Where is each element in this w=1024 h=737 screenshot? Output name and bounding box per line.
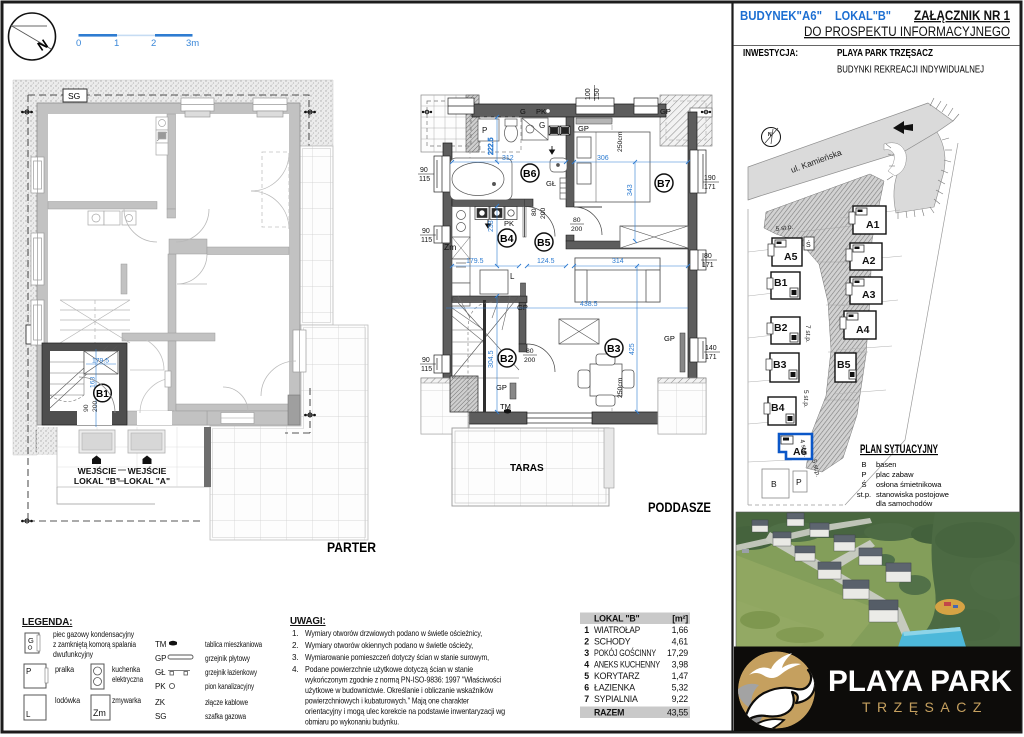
svg-text:osłona śmietnikowa: osłona śmietnikowa [876,480,942,489]
svg-text:171: 171 [702,262,714,269]
svg-text:WEJŚCIE: WEJŚCIE [128,465,167,476]
svg-text:lodówka: lodówka [55,696,81,705]
svg-text:179.5: 179.5 [92,358,109,365]
svg-text:100: 100 [585,88,592,100]
svg-text:343: 343 [627,184,634,196]
svg-text:N: N [768,132,772,138]
svg-text:GP: GP [517,303,528,312]
svg-text:425: 425 [629,343,636,355]
svg-text:200: 200 [92,400,99,412]
svg-text:140: 140 [705,345,717,352]
svg-text:G: G [520,107,526,116]
svg-text:PK: PK [155,682,166,691]
svg-text:B7: B7 [657,178,671,190]
svg-text:222.5: 222.5 [488,137,495,155]
svg-text:A4: A4 [856,324,870,336]
svg-text:250cm: 250cm [617,377,624,398]
svg-text:GP: GP [664,334,675,343]
svg-text:2.: 2. [292,641,299,650]
svg-text:ZK: ZK [155,698,166,707]
svg-text:obmiaru po wykonaniu budynku.: obmiaru po wykonaniu budynku. [305,718,399,727]
svg-text:B: B [771,479,777,489]
svg-text:stanowiska postojowe: stanowiska postojowe [876,490,949,499]
svg-text:P: P [796,477,802,487]
svg-text:304.5: 304.5 [488,350,495,368]
svg-text:Podane powierzchnie użytkowe d: Podane powierzchnie użytkowe dotyczą ści… [305,665,474,674]
svg-text:LOKAL "A": LOKAL "A" [124,476,170,486]
svg-text:A5: A5 [784,251,798,263]
svg-text:DO PROSPEKTU INFORMACYJNEGO: DO PROSPEKTU INFORMACYJNEGO [804,24,1010,39]
svg-text:GP: GP [496,383,507,392]
svg-text:7 st.p.: 7 st.p. [804,325,811,343]
svg-text:Wymiary otworów drzwiowych pod: Wymiary otworów drzwiowych podano w świe… [305,629,482,638]
svg-text:ZAŁĄCZNIK NR 1: ZAŁĄCZNIK NR 1 [914,8,1010,23]
svg-text:plac zabaw: plac zabaw [876,470,914,479]
svg-text:3,98: 3,98 [672,660,689,670]
svg-text:pion kanalizacyjny: pion kanalizacyjny [205,682,254,691]
svg-text:3m: 3m [186,38,199,49]
svg-text:A1: A1 [866,219,880,231]
svg-text:GŁ: GŁ [546,179,556,188]
svg-text:LOKAL "B": LOKAL "B" [74,476,120,486]
svg-text:6: 6 [584,683,589,693]
svg-text:Zm: Zm [444,242,456,252]
svg-text:TM: TM [155,640,167,649]
svg-text:PLAYA PARK TRZĘSACZ: PLAYA PARK TRZĘSACZ [837,48,933,59]
svg-text:314: 314 [612,258,624,265]
svg-text:171: 171 [704,184,716,191]
svg-text:312: 312 [502,155,514,162]
svg-text:B5: B5 [537,237,551,249]
svg-text:4,61: 4,61 [672,637,689,647]
svg-text:grzejnik płytowy: grzejnik płytowy [205,654,250,663]
svg-text:80: 80 [573,217,581,224]
svg-text:LOKAL "B": LOKAL "B" [594,614,640,624]
svg-text:złącze kablowe: złącze kablowe [205,698,249,707]
svg-text:TRZĘSACZ: TRZĘSACZ [862,699,988,715]
svg-text:P: P [861,470,866,479]
svg-text:BUDYNEK"A6": BUDYNEK"A6" [740,8,822,23]
svg-text:[m²]: [m²] [672,614,688,624]
svg-text:A2: A2 [862,255,876,267]
svg-text:GP: GP [660,107,671,116]
svg-text:KORYTARZ: KORYTARZ [594,671,640,681]
svg-text:115: 115 [421,237,432,244]
svg-text:UWAGI:: UWAGI: [290,616,326,627]
svg-text:124.5: 124.5 [537,258,555,265]
svg-text:INWESTYCJA:: INWESTYCJA: [743,48,798,59]
svg-text:TARAS: TARAS [510,463,544,474]
svg-text:90: 90 [422,228,430,235]
svg-text:ŁAZIENKA: ŁAZIENKA [594,683,635,693]
svg-text:WIATROŁAP: WIATROŁAP [594,625,640,635]
svg-text:1: 1 [584,625,589,635]
svg-text:LOKAL"B": LOKAL"B" [835,8,891,23]
svg-text:B3: B3 [607,343,621,355]
svg-text:B1: B1 [774,277,788,289]
svg-text:ANEKS KUCHENNY: ANEKS KUCHENNY [594,660,660,670]
svg-text:dwufunkcyjny: dwufunkcyjny [53,650,93,659]
svg-text:pralka: pralka [55,665,75,674]
svg-text:1,47: 1,47 [672,671,689,681]
svg-text:200: 200 [524,357,536,364]
svg-text:SCHODY: SCHODY [594,637,631,647]
svg-text:0: 0 [76,38,81,49]
svg-text:7: 7 [584,694,589,704]
svg-text:4: 4 [584,660,589,670]
svg-text:115: 115 [421,366,432,373]
svg-text:1,66: 1,66 [672,625,689,635]
svg-text:90: 90 [83,404,90,412]
svg-text:B4: B4 [500,233,514,245]
svg-text:5,32: 5,32 [672,683,689,693]
svg-text:P: P [26,667,31,676]
svg-text:L: L [510,272,515,281]
svg-text:5: 5 [584,671,589,681]
svg-text:1: 1 [114,38,119,49]
svg-text:179.5: 179.5 [466,258,484,265]
svg-text:dla samochodów: dla samochodów [876,499,933,508]
svg-text:G: G [28,636,34,645]
svg-text:BUDYNKI REKREACJI INDYWIDUALNE: BUDYNKI REKREACJI INDYWIDUALNEJ [837,65,984,76]
svg-text:Ś: Ś [806,240,811,249]
svg-text:17,29: 17,29 [667,648,688,658]
svg-text:powierzchniowych i kubaturowyc: powierzchniowych i kubaturowych." Mają o… [305,697,469,706]
svg-text:B: B [861,460,866,469]
svg-text:80: 80 [531,208,538,216]
svg-text:elektryczna: elektryczna [112,675,144,684]
svg-text:GŁ: GŁ [155,668,166,677]
svg-text:wykończonym zgodnie z normą PN: wykończonym zgodnie z normą PN-ISO-9836:… [304,676,501,685]
svg-text:190: 190 [704,175,716,182]
svg-text:80: 80 [704,253,712,260]
svg-text:250cm: 250cm [617,131,624,152]
svg-text:tablica mieszkaniowa: tablica mieszkaniowa [205,640,263,649]
svg-text:RAZEM: RAZEM [594,708,624,718]
svg-text:B2: B2 [774,322,788,334]
svg-text:2: 2 [584,637,589,647]
svg-text:orientacyjny i mogą ulec korek: orientacyjny i mogą ulec korekcie na pod… [305,707,506,716]
svg-text:G: G [539,121,545,130]
svg-text:B2: B2 [500,353,514,365]
svg-text:B6: B6 [523,168,537,180]
svg-text:basen: basen [876,460,896,469]
svg-text:PODDASZE: PODDASZE [648,500,711,515]
svg-text:200: 200 [571,226,583,233]
svg-text:306: 306 [597,155,609,162]
svg-text:LEGENDA:: LEGENDA: [22,617,72,628]
svg-text:GP: GP [578,124,589,133]
svg-text:PK: PK [504,219,514,228]
svg-text:90: 90 [422,357,430,364]
svg-text:użytkowe w budownictwie. Okreś: użytkowe w budownictwie. Określanie i ob… [305,686,493,695]
svg-text:150: 150 [594,88,601,100]
svg-text:9,22: 9,22 [672,694,689,704]
svg-text:SG: SG [68,91,80,101]
svg-text:5 st.p.: 5 st.p. [802,390,809,408]
svg-text:B3: B3 [773,359,787,371]
svg-text:3.: 3. [292,653,299,662]
svg-text:B5: B5 [837,359,851,371]
svg-text:PLAYA PARK: PLAYA PARK [828,665,1012,698]
svg-text:WEJŚCIE: WEJŚCIE [78,465,117,476]
svg-text:4.: 4. [292,665,299,674]
svg-text:3: 3 [584,648,589,658]
svg-text:B4: B4 [771,402,785,414]
svg-text:Ś: Ś [861,480,866,489]
svg-text:PK: PK [536,107,546,116]
svg-text:GP: GP [155,654,166,663]
svg-text:200: 200 [540,207,547,219]
svg-text:SYPIALNIA: SYPIALNIA [594,694,638,704]
svg-text:zmywarka: zmywarka [112,696,142,705]
svg-text:90: 90 [420,167,428,174]
svg-text:kuchenka: kuchenka [112,665,141,674]
svg-text:grzejnik łazienkowy: grzejnik łazienkowy [205,668,257,677]
svg-text:P: P [482,126,487,135]
svg-text:POKÓJ GOŚCINNY: POKÓJ GOŚCINNY [594,647,656,658]
svg-text:2: 2 [151,38,156,49]
svg-text:233: 233 [488,220,495,232]
svg-text:Wymiary otworów okiennych poda: Wymiary otworów okiennych podano w świet… [305,641,473,650]
svg-text:163: 163 [90,376,97,388]
svg-text:43,55: 43,55 [667,708,688,718]
svg-text:z zamkniętą komorą spalania: z zamkniętą komorą spalania [53,640,137,649]
svg-text:438.5: 438.5 [580,301,598,308]
svg-text:PLAN SYTUACYJNY: PLAN SYTUACYJNY [860,444,938,456]
svg-text:171: 171 [705,354,717,361]
svg-text:szafka gazowa: szafka gazowa [205,712,247,721]
svg-text:Wymiarowanie pomieszczeń dotyc: Wymiarowanie pomieszczeń dotyczy ścian w… [305,653,489,662]
svg-text:Zm: Zm [93,708,106,718]
svg-text:1.: 1. [292,629,299,638]
svg-text:A3: A3 [862,289,876,301]
svg-text:SG: SG [155,712,166,721]
svg-text:piec gazowy kondensacyjny: piec gazowy kondensacyjny [53,630,134,639]
svg-text:st.p.: st.p. [857,490,871,499]
svg-text:L: L [26,710,31,719]
svg-text:115: 115 [419,176,430,183]
svg-text:PARTER: PARTER [327,540,376,555]
svg-text:80: 80 [526,348,534,355]
